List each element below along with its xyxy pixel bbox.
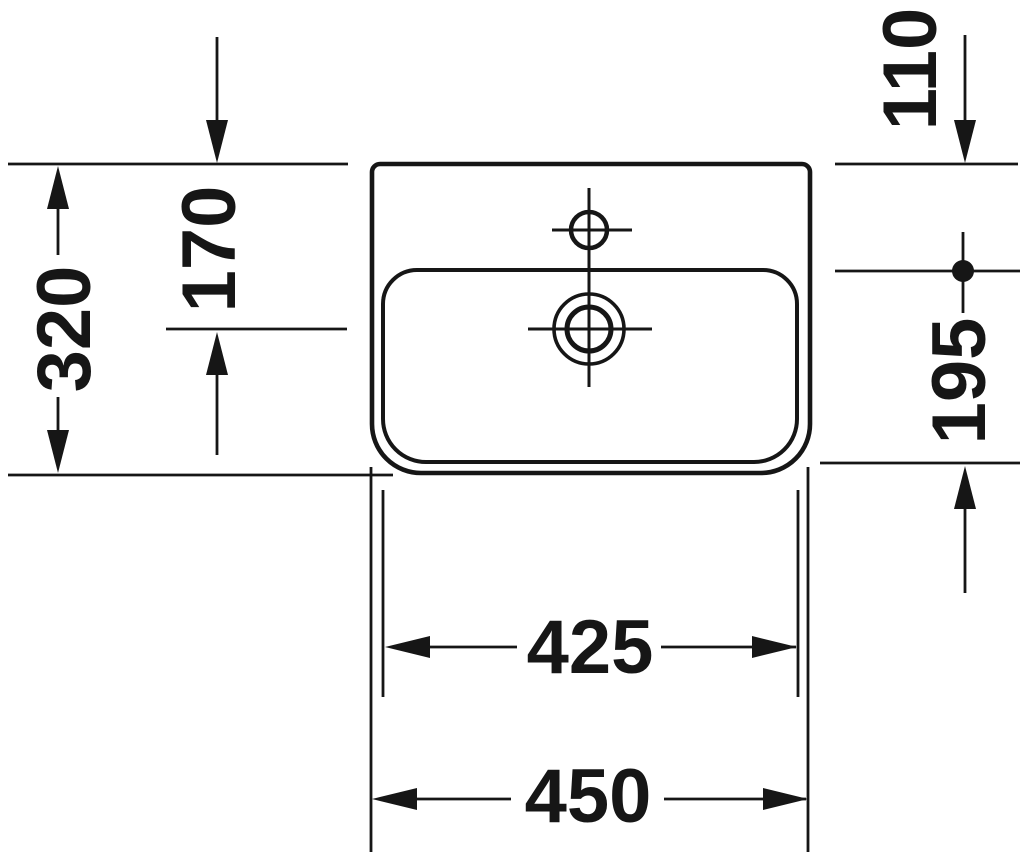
dimension-label-170: 170 (172, 186, 248, 313)
arrowhead-down (206, 120, 228, 163)
arrowhead-up (954, 466, 976, 509)
dimension-label-320: 320 (27, 266, 103, 393)
tap-hole (552, 212, 632, 248)
arrowhead-left (372, 788, 417, 810)
arrowhead-right (752, 636, 797, 658)
dimension-label-450: 450 (525, 759, 652, 835)
dimension-label-425: 425 (527, 610, 654, 686)
dimension-195 (820, 463, 1020, 593)
dimension-label-195: 195 (922, 318, 998, 445)
arrowhead-up (47, 166, 69, 209)
arrowhead-down (47, 430, 69, 473)
arrowhead-right (763, 788, 808, 810)
technical-drawing-canvas: 320 170 110 195 425 450 (0, 0, 1024, 859)
arrowhead-down (954, 120, 976, 163)
arrowhead-up (206, 332, 228, 375)
chain-dimension-point (835, 232, 1020, 313)
dimension-label-110: 110 (873, 8, 949, 131)
arrowhead-left (385, 636, 430, 658)
dimension-dot (952, 260, 974, 282)
